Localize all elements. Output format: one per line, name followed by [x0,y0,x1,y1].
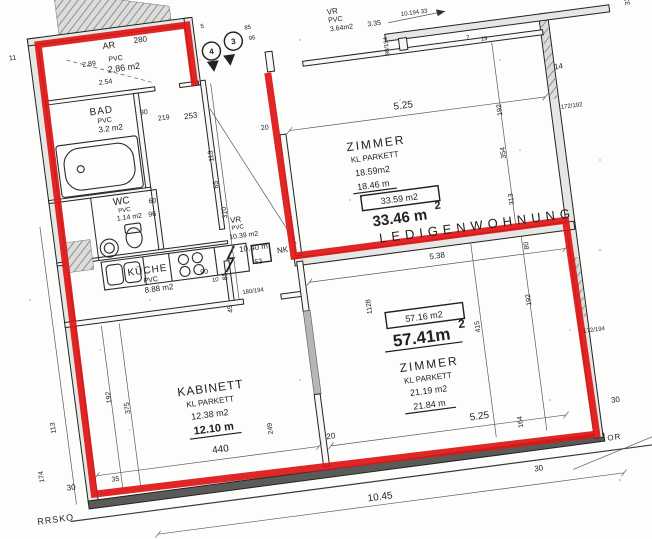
wall-entry-stub [265,51,275,72]
vr-dim-20: 20 [261,124,270,132]
nk-label: NK [276,245,289,255]
kabinett-dim-20: 20 [326,431,337,441]
stove-burner-3 [179,266,190,277]
ext-dim-172-192: 172/192 [561,102,584,111]
wall-tab [398,38,407,51]
ext-dim-1045: 10.45 [367,490,394,504]
zimmer-un-dim-525-bot: 5.25 [469,410,490,424]
apartment-boundary-highlight [35,0,597,500]
wall-wc-left-divider [91,198,99,260]
kabinett-dim-375: 375 [124,402,132,415]
zimmer-un-dim-192: 192 [525,293,533,306]
kueche-dim-45: 45 [227,304,235,313]
vr-dim-310: 310 [221,206,229,219]
vr-dim-53: 53 [254,258,263,266]
sink-basin-1 [106,264,124,286]
rotated-plan: 4 3 AR 280 2.89 PVC 2.86 m2 2.54 BAD PVC… [0,0,652,539]
vr-top-dim-335: 3.35 [367,20,382,29]
door-leaf-zimmer-un [303,310,321,394]
nk-dim: 180/194 [242,287,265,296]
ext-dim-top-arrow: 10.194 33 [401,8,429,18]
vr-dim-65: 65 [212,180,220,189]
bathtub [56,136,144,198]
bad-area: 3.2 m2 [98,122,124,134]
wc-dim-60: 60 [148,198,157,206]
bad-dim-219: 219 [158,114,171,122]
kabinett-dim-35: 35 [111,476,120,484]
kabinett-dim-440: 440 [212,443,230,456]
wall-bad-bottom [49,187,152,203]
wall-zimmer-un-left-a [297,261,309,311]
counter-divider-3 [214,247,218,275]
ext-dim-30-right: 30 [610,395,621,405]
vr-floor: PVC [231,224,245,232]
room-label-kabinett: KABINETT [176,377,244,400]
vr-top-area: 3.64m2 [330,23,354,33]
counter-divider-2 [168,253,172,281]
room-label-wc: WC [112,195,130,208]
kueche-dim-90: 90 [200,268,209,276]
vr-top-dim-95: 95 [248,35,256,42]
stove-burner-2 [192,252,203,263]
entrance-arrow-2 [223,54,236,66]
entrance-markers: 4 3 [200,31,245,73]
zimmer-ob-dim-354: 354 [499,146,507,159]
zimmer-ob-dim-313: 313 [508,193,516,206]
bathtub-inner [62,141,137,192]
ext-dim-30-bottom: 30 [534,463,545,473]
washbasin-inner [104,242,115,253]
zimmer-un-dim-164: 164 [517,415,525,428]
kabinett-area: 12.38 m2 [191,407,230,422]
zimmer-ob-total-sup: 2 [434,200,442,213]
bathtub-drain [77,165,85,173]
ext-dim-11: 11 [9,55,17,63]
toilet [125,227,143,249]
vr-area: 10.39 m2 [229,231,259,242]
kabinett-dim-192: 192 [105,391,113,404]
wall-zimmer-un-left-b [314,394,329,467]
arrow-head [436,8,446,16]
ext-dim-14: 14 [553,61,564,71]
kueche-dim-10: 10 [212,277,220,284]
scanned-floor-plan: 4 3 AR 280 2.89 PVC 2.86 m2 2.54 BAD PVC… [0,0,652,539]
kueche-dim-85: 85 [221,272,229,281]
floor-plan-drawing: 4 3 AR 280 2.89 PVC 2.86 m2 2.54 BAD PVC… [0,0,652,539]
zimmer-ob-area: 18.59m2 [354,164,390,178]
ext-dim-174: 174 [38,470,46,483]
vr-top-dim-5: 5 [200,24,205,30]
zimmer-un-area: 21.19 m2 [409,383,448,398]
ar-dim-280: 280 [133,34,148,45]
ar-dim-289: 2.89 [82,60,97,69]
vr-dim-113: 113 [207,150,215,162]
room-label-vr-top: VR [326,6,338,16]
zimmer-ob-dim-525: 5.25 [393,99,414,113]
entrance-arrow-1 [207,60,220,72]
ext-label-or: OR [607,432,622,443]
vr-dim-253: 253 [184,110,199,121]
vr-top-floor: PVC [328,16,343,25]
kabinett-length: 12.10 m [193,420,235,437]
bad-dim-90: 90 [140,109,149,117]
entrance-circle-3-label: 3 [231,37,237,47]
room-label-vr: VR [230,215,242,225]
street-label-rrsko: RRSKO [37,512,75,527]
entrance-circle-4-label: 4 [209,47,215,57]
ext-dim-30-left: 30 [66,483,77,493]
ext-dim-33: 33 [624,0,632,6]
ar-dim-254: 2.54 [98,78,113,87]
stove-burner-1 [178,254,189,265]
zimmer-un-dim-538: 5.38 [429,250,446,261]
wall-kueche-bottom-a [65,299,244,327]
zimmer-un-dim-1128: 1128 [365,299,374,315]
vr-top-dim-85: 85 [244,25,252,32]
room-label-ar: AR [102,40,116,52]
room-label-kueche: KÜCHE [127,262,168,279]
ext-dim-113: 113 [50,422,58,434]
zimmer-un-dim-80: 80 [523,241,531,250]
zimmer-ob-dim-192: 192 [496,104,504,117]
kabinett-dim-249: 249 [266,422,274,435]
wc-dim-96: 96 [148,211,157,219]
